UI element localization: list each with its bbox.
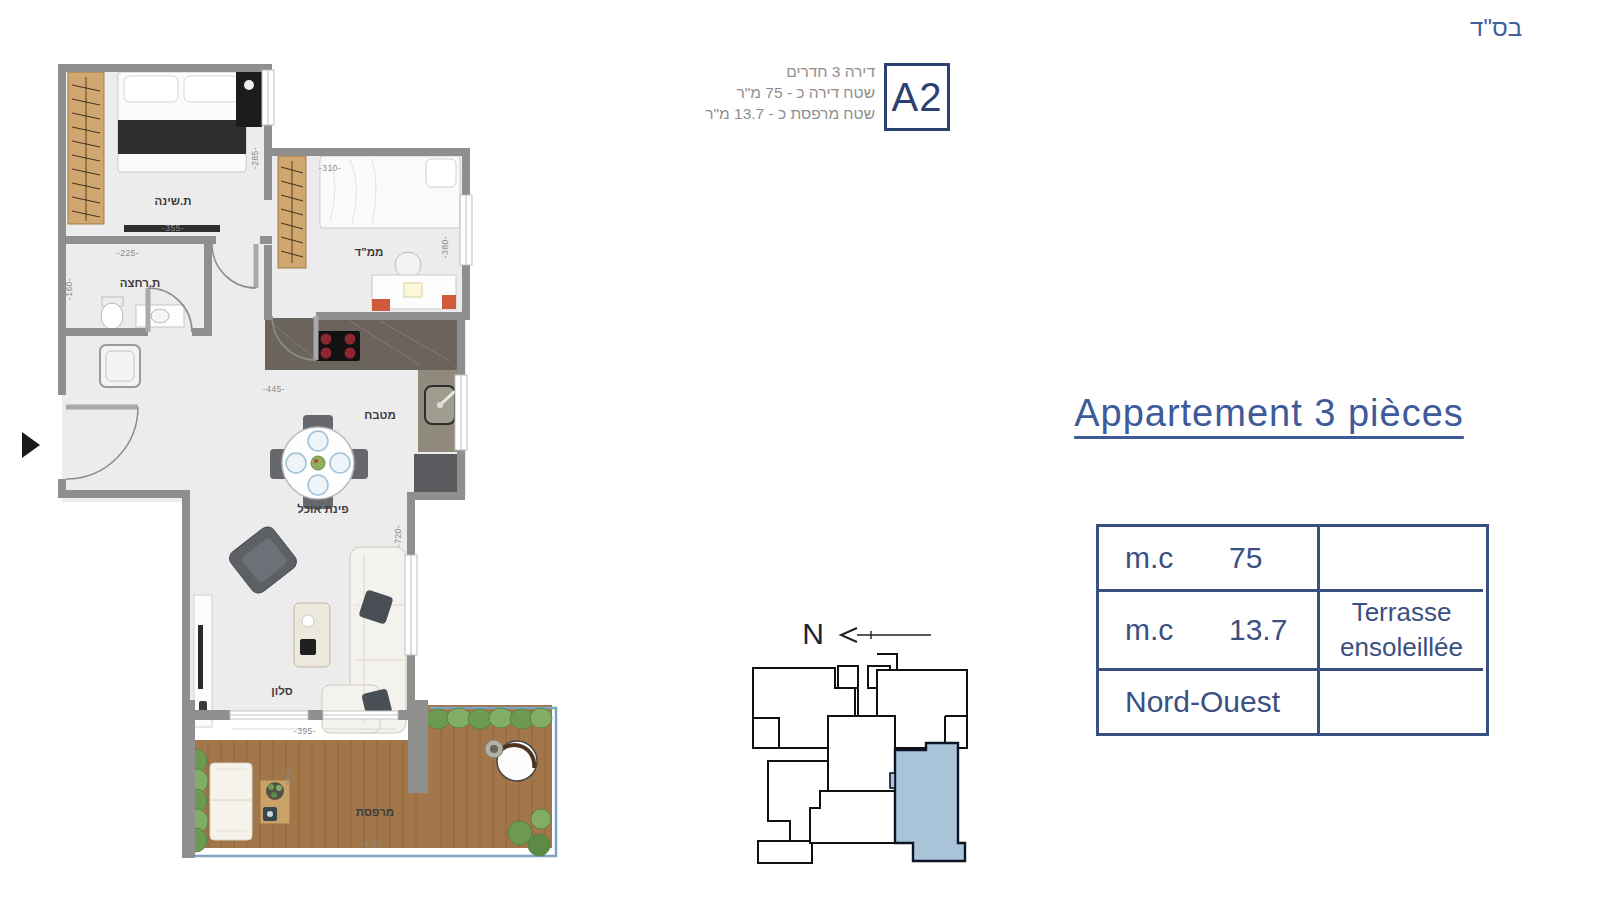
nightstand-lamp: [244, 80, 254, 90]
note-line-1: Terrasse: [1352, 595, 1452, 630]
dim-living-w: -395-: [294, 726, 316, 736]
bedroom-label: ת.שינה: [155, 195, 192, 207]
bathroom-vanity: [136, 305, 184, 327]
north-arrow-icon: N: [802, 617, 931, 650]
note-line-2: ensoleillée: [1340, 630, 1463, 665]
spec-value: 13.7: [1229, 613, 1287, 647]
safe-room-label: ממ"ד: [355, 246, 384, 258]
info-line-terrace: שטח מרפסת כ - 13.7 מ"ר: [635, 104, 875, 125]
bedroom-wardrobe: [68, 72, 104, 224]
dim-terrace-w: -470-: [361, 839, 383, 849]
spec-row-terrace: m.c 13.7: [1099, 592, 1320, 671]
dim-bathroom-w: -225-: [117, 248, 139, 258]
washing-machine: [100, 345, 140, 387]
terrace-label: מרפסת: [356, 806, 394, 818]
double-bed: [118, 72, 246, 172]
dim-terrace-d: -175-: [284, 767, 294, 789]
spec-row-area: m.c 75: [1099, 527, 1320, 592]
dim-kitchen-w: -445-: [263, 384, 285, 394]
spec-value: 75: [1229, 541, 1262, 575]
dim-safe-room-h: -380-: [440, 236, 450, 258]
spec-label: m.c: [1125, 541, 1229, 575]
entrance-arrow-icon: [22, 432, 40, 458]
north-label: N: [802, 617, 824, 650]
sun-loungers: [210, 763, 252, 840]
nightstand: [236, 69, 262, 127]
info-line-area: שטח דירה כ - 75 מ"ר: [635, 83, 875, 104]
tv-icon: [198, 625, 203, 689]
kitchen-label: מטבח: [364, 409, 396, 421]
highlighted-unit-a2: [890, 743, 965, 861]
apartment-floor-plan: ת.שינה ממ"ד ת.רחצה מטבח פינת אוכל סלון מ…: [20, 55, 565, 880]
apartment-info-block: דירה 3 חדרים שטח דירה כ - 75 מ"ר שטח מרפ…: [635, 62, 875, 124]
info-line-rooms: דירה 3 חדרים: [635, 62, 875, 83]
unit-code-badge: A2: [884, 63, 950, 131]
toilet: [101, 297, 123, 329]
spec-note-empty2: [1320, 671, 1483, 733]
page-title: Appartement 3 pièces: [1046, 392, 1492, 435]
dim-living-h: -720-: [393, 525, 403, 547]
tv-console: [194, 595, 212, 727]
spec-note-terrace: Terrasse ensoleillée: [1320, 592, 1483, 671]
dim-bedroom-h: -285-: [250, 147, 260, 169]
dim-bedroom-w: -355-: [162, 223, 184, 233]
dim-safe-room-w: -310-: [319, 163, 341, 173]
safe-room-wardrobe: [278, 156, 306, 268]
living-label: סלון: [271, 685, 293, 697]
bathroom-label: ת.רחצה: [120, 277, 161, 289]
spec-label: m.c: [1125, 613, 1229, 647]
spec-label: Nord-Ouest: [1125, 685, 1280, 719]
spec-table: m.c 75 m.c 13.7 Terrasse ensoleillée Nor…: [1096, 524, 1489, 736]
coffee-table: [294, 603, 330, 667]
building-key-plan: N: [735, 606, 975, 868]
spec-row-orientation: Nord-Ouest: [1099, 671, 1320, 733]
dining-label: פינת אוכל: [297, 503, 348, 515]
dim-bathroom-h: -160-: [64, 278, 74, 300]
spec-note-empty: [1320, 527, 1483, 592]
bsd-text: בס"ד: [1392, 14, 1522, 42]
